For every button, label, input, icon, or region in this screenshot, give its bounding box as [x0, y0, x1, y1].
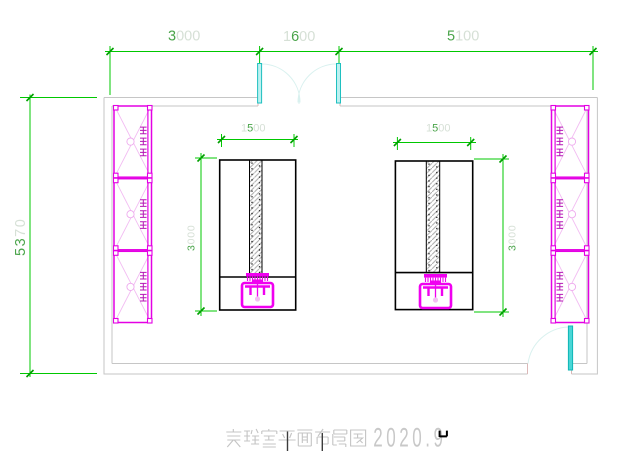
svg-text:5370: 5370	[13, 218, 29, 256]
svg-text:3000: 3000	[507, 224, 519, 251]
svg-text:1500: 1500	[426, 123, 451, 135]
svg-text:3000: 3000	[168, 29, 200, 45]
svg-text:5100: 5100	[447, 29, 479, 45]
svg-text:1600: 1600	[283, 29, 315, 45]
svg-text:1500: 1500	[241, 123, 266, 135]
svg-text:2020.9: 2020.9	[373, 423, 446, 453]
svg-text:3000: 3000	[186, 224, 198, 251]
